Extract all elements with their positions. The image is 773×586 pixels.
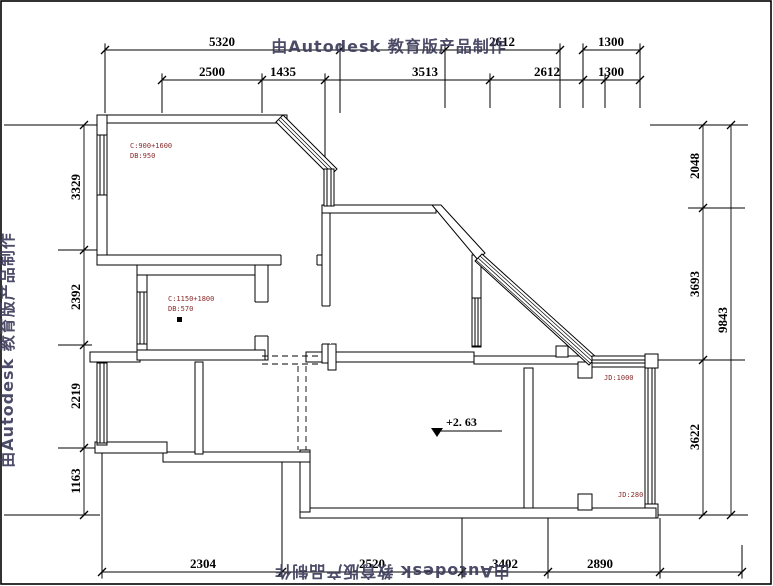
watermark-bottom: 由Autodesk 教育版产品制作 xyxy=(274,562,509,581)
dim-right-outer-column: 9843 xyxy=(715,121,738,519)
jd-annotation-bottom: JD:280 xyxy=(618,491,643,499)
elevation-triangle-icon xyxy=(431,428,443,437)
dim-label: 1435 xyxy=(270,64,297,79)
dim-label: 2392 xyxy=(68,284,83,310)
room-annotations: C:900+1600 DB:950 C:1150+1800 DB:570 JD:… xyxy=(130,142,643,499)
elevation-value: +2. 63 xyxy=(446,415,477,429)
dim-label: 2219 xyxy=(68,383,83,410)
window-room-a-left xyxy=(97,135,107,195)
dim-label: 3622 xyxy=(687,424,702,450)
column-marker xyxy=(177,317,182,322)
watermark-left: 由Autodesk 教育版产品制作 xyxy=(0,232,17,467)
dim-label: 2612 xyxy=(534,64,560,79)
dim-right-inner-column: 2048 3693 3622 xyxy=(687,121,710,519)
diagonal-window-glazing-line xyxy=(480,256,594,359)
window-room-f-top xyxy=(592,356,645,367)
dim-label: 1300 xyxy=(598,64,624,79)
floorplan-canvas: 5320 2612 1300 2500 1435 3513 2612 1300 … xyxy=(0,0,773,586)
floor-plan-walls xyxy=(90,115,658,518)
window-spec-room-a-line1: C:900+1600 xyxy=(130,142,172,150)
window-room-bl-left xyxy=(97,363,107,443)
dim-left-column: 3329 2392 2219 1163 xyxy=(68,121,91,519)
window-spec-room-b-line2: DB:570 xyxy=(168,305,193,313)
dim-label: 2890 xyxy=(587,556,613,571)
window-spec-room-b-line1: C:1150+1800 xyxy=(168,295,214,303)
watermark-top: 由Autodesk 教育版产品制作 xyxy=(271,37,506,56)
dim-label: 3329 xyxy=(68,174,83,201)
dim-label: 1163 xyxy=(68,468,83,494)
chamfer-window-glazing-line xyxy=(281,118,334,171)
dim-label: 2048 xyxy=(687,153,702,180)
jd-annotation-top: JD:1000 xyxy=(604,374,634,382)
dim-label: 2500 xyxy=(199,64,225,79)
dim-label: 3693 xyxy=(687,271,702,298)
dim-label: 1300 xyxy=(598,34,624,49)
dim-label: 9843 xyxy=(715,307,730,334)
window-room-a-right xyxy=(324,169,334,206)
window-room-b-left xyxy=(137,292,147,344)
chamfer-window-glazing-line xyxy=(279,120,332,173)
window-spec-room-a-line2: DB:950 xyxy=(130,152,155,160)
dashed-opening-lines xyxy=(262,356,320,450)
diagonal-window-glazing-line xyxy=(478,258,592,361)
dim-top-row2: 2500 1435 3513 2612 1300 xyxy=(158,64,644,87)
window-room-f-right xyxy=(645,368,655,504)
dim-label: 3513 xyxy=(412,64,439,79)
elevation-marker: +2. 63 xyxy=(431,415,502,437)
diagonal-window-glazing-line xyxy=(476,260,590,363)
window-room-c-right xyxy=(472,298,481,346)
dim-label: 2304 xyxy=(190,556,217,571)
dim-label: 5320 xyxy=(209,34,235,49)
